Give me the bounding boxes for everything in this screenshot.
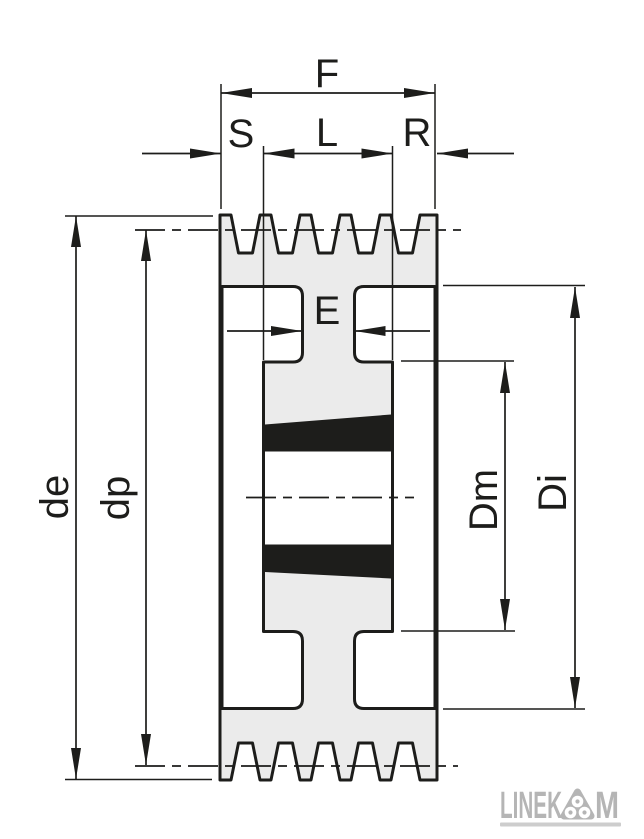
arrowhead <box>271 326 302 336</box>
logo-tagline <box>500 823 621 827</box>
arrowhead <box>221 88 252 98</box>
arrowhead <box>404 88 435 98</box>
dim-label-E: E <box>314 289 341 333</box>
dim-label-Dm: Dm <box>462 469 506 531</box>
logo-text-left: LINEK <box>500 785 562 827</box>
dim-label-de: de <box>33 475 77 520</box>
arrowhead <box>500 362 510 393</box>
linekom-badge-icon <box>564 792 591 818</box>
logo-text-right: M <box>595 785 619 827</box>
dim-label-S: S <box>228 112 255 156</box>
dim-label-Di: Di <box>531 474 575 512</box>
dimension-dp: dp <box>94 230 151 765</box>
arrowhead <box>362 149 393 159</box>
badge-dot <box>582 810 586 814</box>
linekom-logo: LINEK M <box>500 785 621 827</box>
badge-dot <box>568 810 572 814</box>
drawing-canvas: F S L R E de dp <box>0 0 644 839</box>
dimension-E: E <box>227 289 430 336</box>
pulley-drawing: F S L R E de dp <box>0 0 644 839</box>
arrowhead <box>570 677 580 708</box>
arrowhead <box>141 230 151 261</box>
arrowhead <box>71 216 81 247</box>
arrowhead <box>437 149 468 159</box>
arrowhead <box>355 326 386 336</box>
dim-label-L: L <box>316 111 338 155</box>
dimension-Dm: Dm <box>401 361 515 631</box>
dim-label-F: F <box>315 52 339 96</box>
dim-label-R: R <box>403 111 432 155</box>
arrowhead <box>570 287 580 318</box>
arrowhead <box>264 149 295 159</box>
arrowhead <box>141 734 151 765</box>
arrowhead <box>190 149 221 159</box>
arrowhead <box>71 748 81 779</box>
arrowhead <box>500 599 510 630</box>
badge-dot <box>575 799 579 803</box>
dim-label-dp: dp <box>94 476 138 521</box>
